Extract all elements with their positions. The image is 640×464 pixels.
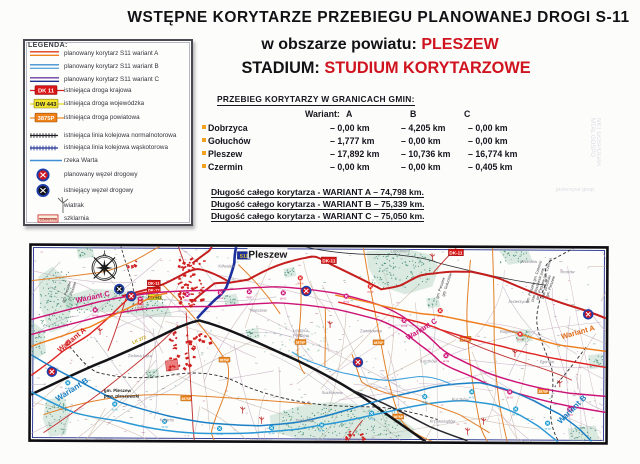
svg-text:W-04: W-04 [162,424,169,428]
svg-text:W-08: W-08 [367,289,374,293]
svg-text:W-04: W-04 [369,416,376,420]
svg-text:Kuczków: Kuczków [420,358,438,363]
svg-text:Pleszew: Pleszew [248,249,287,260]
svg-text:W-05: W-05 [112,407,119,411]
svg-text:W-03: W-03 [401,323,408,327]
svg-text:W-02: W-02 [343,299,350,303]
svg-text:3875P: 3875P [296,340,307,344]
svg-text:Lubomierz: Lubomierz [390,248,410,253]
svg-text:Marszew: Marszew [250,307,268,312]
svg-text:W-06: W-06 [422,400,429,404]
svg-text:W-06: W-06 [269,431,276,435]
svg-text:Taczanów: Taczanów [296,417,316,422]
svg-text:Wszołów: Wszołów [520,258,538,263]
svg-text:Suchorzew: Suchorzew [322,390,344,395]
svg-text:W-04: W-04 [513,412,520,416]
svg-text:DK-11: DK-11 [148,280,160,285]
svg-text:Bronów: Bronów [560,269,575,274]
svg-text:W-07: W-07 [507,395,514,399]
svg-text:Łęczyca: Łęczyca [293,327,309,332]
svg-text:W-09: W-09 [443,359,450,363]
svg-text:Bógwidze: Bógwidze [500,328,519,333]
svg-text:Krzywosądów: Krzywosądów [430,418,457,423]
svg-text:Kotarby: Kotarby [160,417,175,422]
svg-text:Bronów: Bronów [540,359,555,364]
svg-text:W-02: W-02 [469,395,476,399]
svg-text:W-02: W-02 [217,296,224,300]
svg-text:DK-11: DK-11 [449,250,462,255]
svg-text:W-09: W-09 [92,313,99,317]
svg-text:3875P: 3875P [181,397,192,401]
svg-text:pow. pleszewski: pow. pleszewski [104,393,140,398]
svg-text:Zielona Łąka: Zielona Łąka [128,353,153,358]
svg-text:W-03: W-03 [437,314,444,318]
svg-text:3875P: 3875P [393,415,404,419]
svg-text:W-09: W-09 [137,305,144,309]
svg-text:W-02: W-02 [280,296,287,300]
svg-text:3875P: 3875P [374,340,385,344]
svg-text:Kowalew: Kowalew [218,263,236,268]
svg-text:DK-11: DK-11 [322,258,335,263]
svg-text:Kuczków: Kuczków [452,396,470,401]
svg-text:Pleszew.: Pleszew. [293,332,310,337]
svg-text:W-07: W-07 [246,295,253,299]
svg-text:gm. Pleszew: gm. Pleszew [104,387,132,392]
svg-text:S11: S11 [240,253,249,259]
svg-text:W-02: W-02 [217,432,224,436]
svg-text:Zawidowice: Zawidowice [360,328,383,333]
svg-text:W-05: W-05 [319,428,326,432]
svg-text:W-05: W-05 [517,337,524,341]
svg-text:W-03: W-03 [545,426,552,430]
svg-text:3875P: 3875P [220,358,231,362]
svg-text:W-04: W-04 [297,281,304,285]
